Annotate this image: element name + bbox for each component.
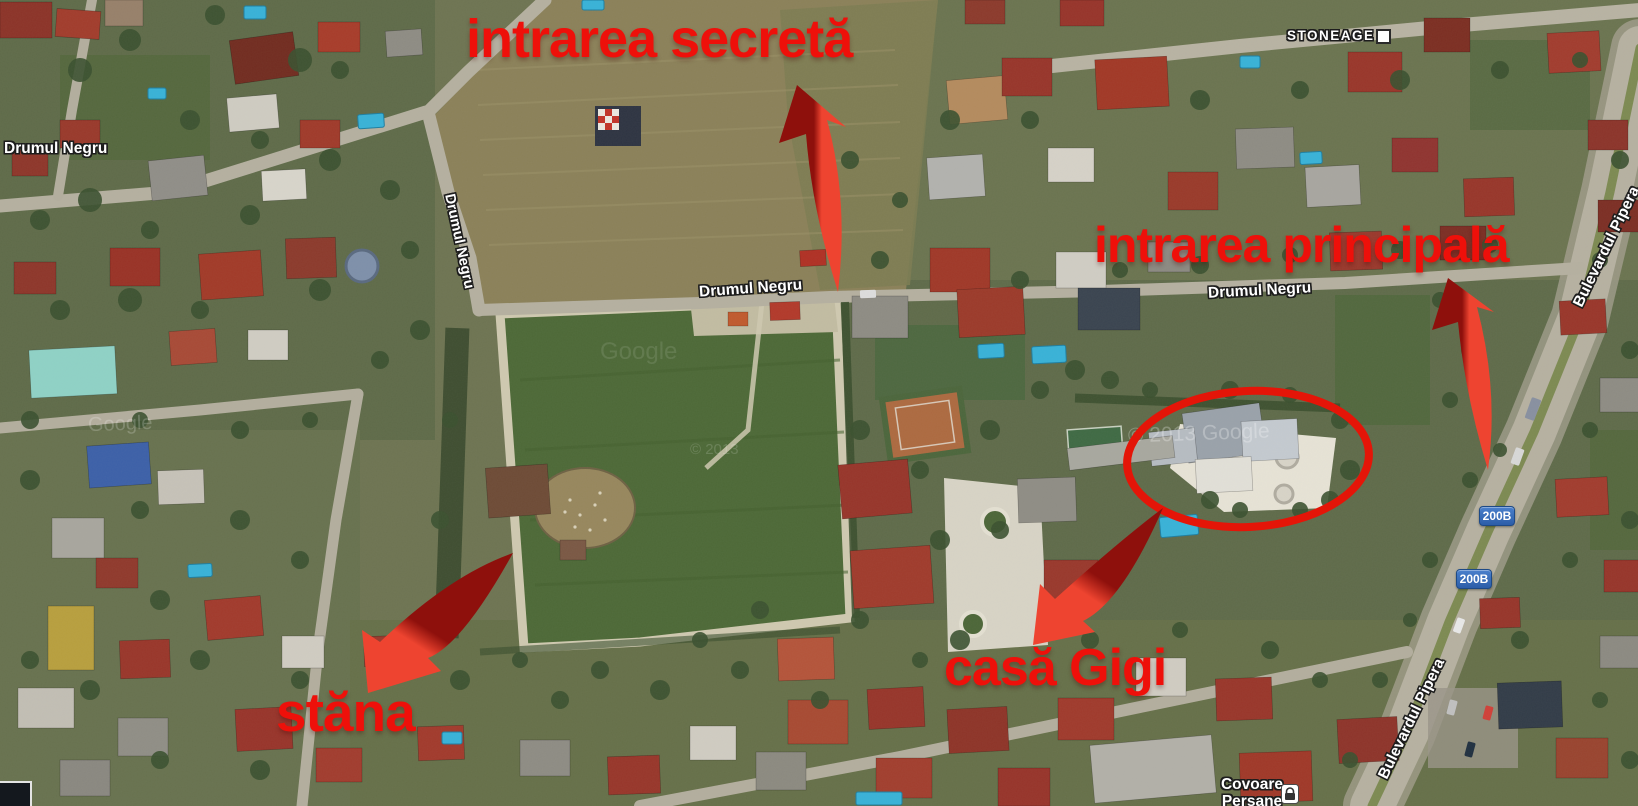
annotation-main-entrance: intrarea principală [1094, 216, 1509, 274]
annotation-sheepfold: stăna [276, 680, 415, 744]
street-label-stoneage: STONEAGE [1287, 28, 1375, 43]
satellite-terrain [0, 0, 1638, 806]
watermark-google: Google [88, 412, 153, 437]
noise-texture [0, 0, 1638, 806]
street-label-drumul-negru-nw: Drumul Negru [4, 140, 107, 158]
corner-artifact [0, 781, 32, 806]
watermark-copyright: © 2013 [690, 441, 739, 458]
stoneage-poi-square-icon [1376, 29, 1391, 44]
route-badge-200b-south: 200B [1456, 569, 1492, 589]
poi-label-covoare: Covoare [1221, 776, 1283, 794]
satellite-map-screenshot: Drumul Negru Drumul Negru Drumul Negru D… [0, 0, 1638, 806]
poi-label-persane: Persane [1222, 793, 1282, 806]
watermark-google: Google [600, 338, 677, 366]
route-badge-200b-north: 200B [1479, 506, 1515, 526]
annotation-secret-entrance: intrarea secretă [466, 8, 852, 70]
annotation-gigi-house: casă Gigi [944, 638, 1166, 698]
watermark-copyright: © 2013 Google [1128, 420, 1270, 449]
